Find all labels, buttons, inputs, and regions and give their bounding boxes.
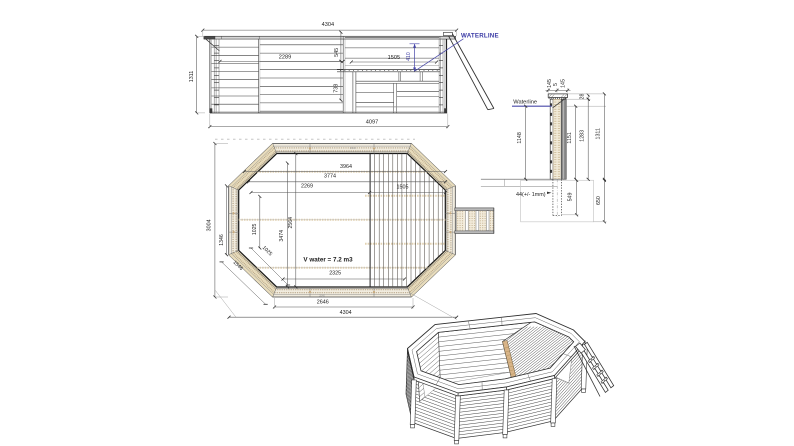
svg-text:WATERLINE: WATERLINE [461,33,499,40]
svg-text:145: 145 [560,79,566,88]
svg-text:1346: 1346 [219,234,225,246]
svg-text:1311: 1311 [189,71,195,83]
svg-text:545: 545 [334,48,340,57]
svg-text:1505: 1505 [397,185,409,191]
svg-text:3004: 3004 [207,219,213,231]
svg-text:650: 650 [596,196,602,205]
svg-text:2040: 2040 [319,294,325,298]
svg-text:1311: 1311 [596,128,602,139]
svg-text:4304: 4304 [322,22,334,28]
svg-text:Waterline: Waterline [513,100,537,106]
svg-text:2289: 2289 [279,54,291,60]
svg-text:2269: 2269 [301,184,313,190]
svg-text:3964: 3964 [340,164,352,170]
svg-text:1148: 1148 [517,132,523,143]
svg-text:4097: 4097 [366,119,378,125]
svg-text:549: 549 [568,193,574,202]
svg-text:738: 738 [333,84,339,93]
svg-text:1505: 1505 [388,55,400,61]
svg-text:3774: 3774 [324,174,336,180]
svg-text:2564: 2564 [288,217,294,229]
svg-text:410: 410 [406,52,412,61]
svg-text:28: 28 [580,94,586,100]
svg-text:5: 5 [553,83,559,86]
svg-text:3474: 3474 [279,230,285,242]
svg-text:145: 145 [547,79,553,88]
svg-text:1283: 1283 [580,130,586,142]
svg-text:2325: 2325 [329,271,341,277]
svg-text:2646: 2646 [317,300,329,306]
svg-text:4304: 4304 [340,310,352,316]
svg-text:2040: 2040 [350,146,356,150]
svg-text:1025: 1025 [252,224,258,236]
svg-text:44(+/- 1mm): 44(+/- 1mm) [516,192,546,198]
svg-text:V water = 7.2 m3: V water = 7.2 m3 [303,257,353,264]
svg-text:1151: 1151 [567,132,573,143]
